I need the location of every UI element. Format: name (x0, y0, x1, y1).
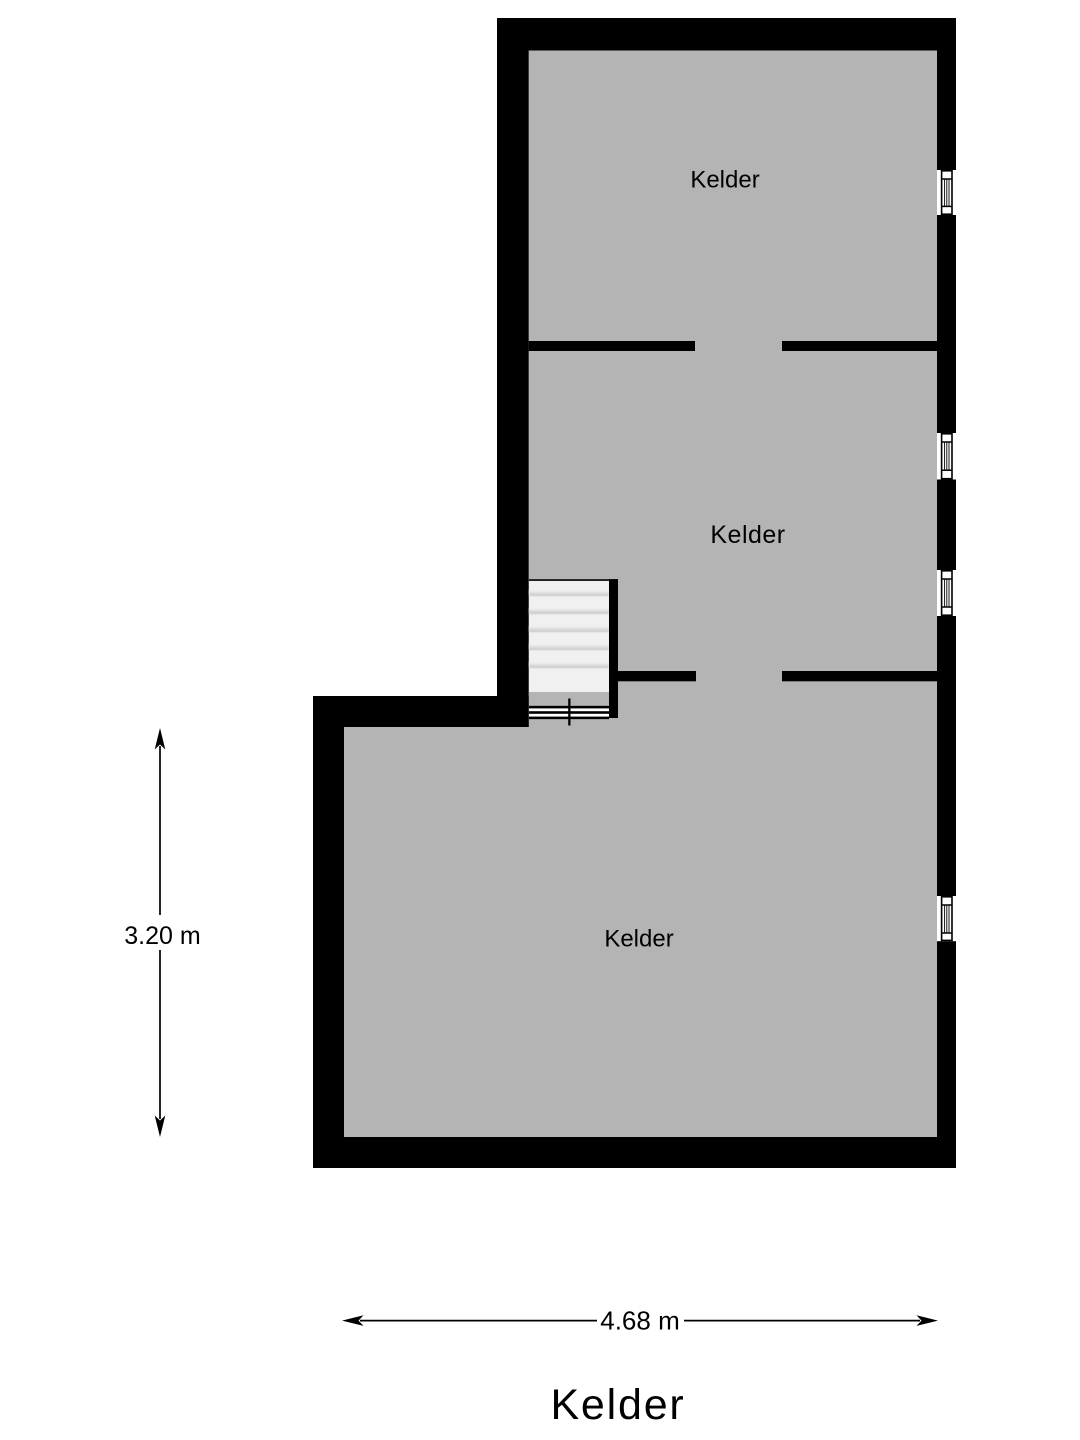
svg-text:Kelder: Kelder (710, 521, 785, 549)
svg-text:3.20 m: 3.20 m (124, 922, 200, 950)
svg-text:Kelder: Kelder (690, 167, 759, 194)
svg-text:Kelder: Kelder (550, 1381, 685, 1429)
svg-text:4.68 m: 4.68 m (600, 1306, 680, 1336)
svg-text:Kelder: Kelder (604, 926, 673, 953)
